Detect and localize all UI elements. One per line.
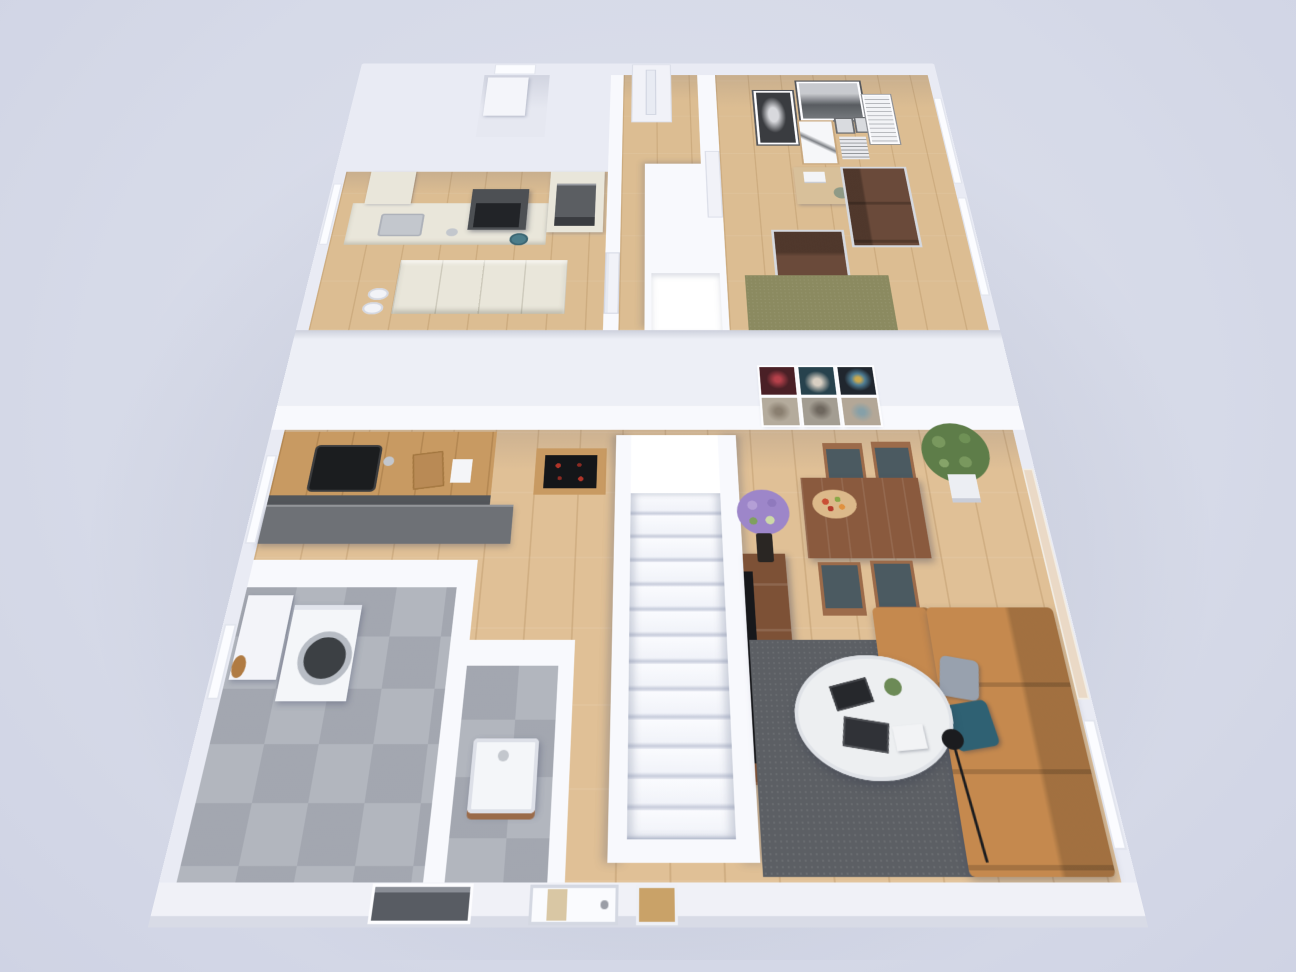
gallery-feather-print — [799, 122, 838, 164]
island-cooktop — [543, 455, 597, 488]
stair-landing — [631, 435, 721, 493]
plant-pot — [947, 474, 981, 502]
storage-window — [494, 64, 537, 74]
drawer-counter — [391, 260, 568, 314]
painting-dark-floral — [759, 367, 796, 395]
desk-books — [803, 172, 826, 182]
door-sidelight — [636, 885, 678, 926]
flower-vase — [756, 533, 774, 562]
dining-chair-3 — [818, 562, 867, 615]
dining-table — [800, 478, 931, 559]
painting-woman-white — [798, 367, 836, 395]
laundry-top-wall — [247, 560, 478, 587]
dining-chair-4 — [870, 561, 921, 614]
storage-closet — [483, 77, 529, 115]
coffee-table-book — [892, 724, 928, 751]
pillow-gray — [939, 655, 979, 702]
stair-treads — [627, 493, 736, 839]
upper-wall-cabinet — [364, 172, 416, 204]
painting-pearl-earring — [837, 367, 876, 395]
kitchen-door — [603, 252, 620, 313]
upper-kitchen-sink — [377, 214, 425, 237]
oven — [554, 184, 596, 226]
black-sink — [306, 445, 383, 492]
gallery-portrait-photo — [756, 93, 796, 143]
gallery-small-text-print — [839, 137, 870, 160]
upper-cooktop — [473, 203, 521, 227]
gallery-mini-frame-1 — [836, 119, 854, 132]
olive-rug — [745, 275, 898, 330]
kitchen-towel — [450, 459, 473, 482]
dark-half-wall — [257, 505, 513, 544]
lower-back-wall — [271, 406, 1025, 430]
ground-floor — [159, 430, 1137, 883]
upper-stair-landing — [651, 273, 722, 330]
floor-plan-scene — [0, 0, 1296, 972]
cellar-window — [371, 887, 471, 921]
painting-muted-1 — [762, 398, 800, 425]
painting-muted-3 — [841, 398, 881, 425]
upper-entry-door-glass — [646, 70, 657, 115]
upper-floor — [296, 64, 1000, 330]
stairwell-front-wall — [607, 839, 760, 862]
slab-edge-shadow — [294, 330, 1003, 339]
painting-muted-2 — [801, 398, 840, 425]
cutting-board — [413, 451, 445, 490]
front-door-glass — [546, 889, 567, 921]
gallery-landscape-photo — [799, 83, 863, 118]
